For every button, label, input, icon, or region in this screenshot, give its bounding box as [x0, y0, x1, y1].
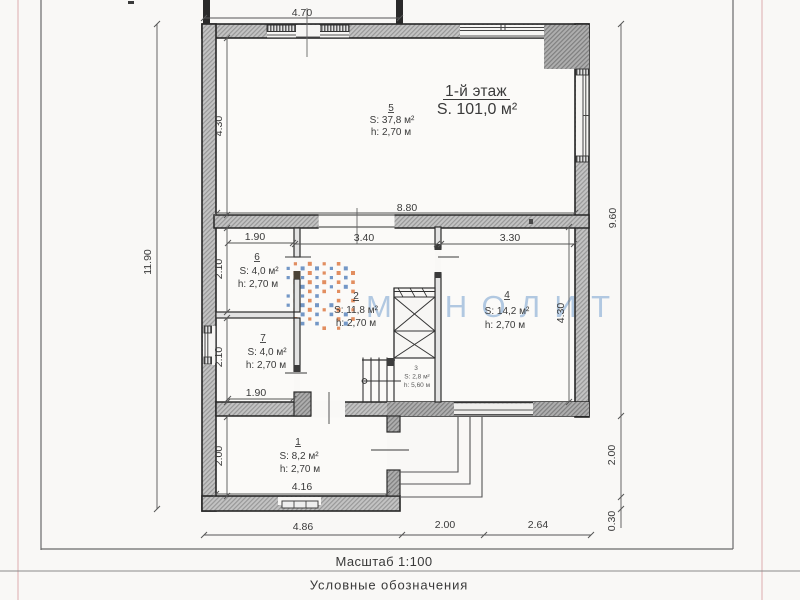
svg-text:h: 2,70 м: h: 2,70 м [336, 318, 376, 329]
svg-text:S: 2,8 м²: S: 2,8 м² [404, 374, 430, 381]
svg-text:S: 11,8 м²: S: 11,8 м² [334, 305, 379, 316]
svg-text:S. 101,0 м²: S. 101,0 м² [437, 101, 518, 118]
svg-text:2.00: 2.00 [606, 445, 618, 466]
svg-text:h: 2,70 м: h: 2,70 м [485, 320, 525, 331]
svg-text:2.10: 2.10 [213, 347, 225, 368]
svg-text:4.16: 4.16 [292, 481, 313, 493]
svg-text:4.70: 4.70 [292, 7, 313, 19]
svg-text:S: 14,2 м²: S: 14,2 м² [485, 306, 530, 317]
svg-text:Масштаб 1:100: Масштаб 1:100 [336, 554, 433, 569]
svg-text:4.30: 4.30 [555, 303, 567, 324]
svg-text:2.64: 2.64 [528, 519, 549, 531]
svg-text:4.30: 4.30 [213, 116, 225, 137]
svg-text:h: 2,70 м: h: 2,70 м [246, 360, 286, 371]
svg-text:S: 4,0 м²: S: 4,0 м² [247, 347, 287, 358]
svg-text:1.90: 1.90 [245, 231, 266, 243]
svg-text:3: 3 [414, 365, 418, 372]
svg-text:2.00: 2.00 [435, 519, 456, 531]
svg-text:8.80: 8.80 [397, 202, 418, 214]
svg-text:9.60: 9.60 [607, 208, 619, 229]
svg-text:1.90: 1.90 [246, 387, 267, 399]
svg-text:h: 2,70 м: h: 2,70 м [371, 127, 411, 138]
svg-text:S: 4,0 м²: S: 4,0 м² [239, 266, 279, 277]
svg-text:3.30: 3.30 [500, 232, 521, 244]
svg-text:1-й этаж: 1-й этаж [445, 83, 507, 100]
svg-text:0.30: 0.30 [606, 511, 618, 532]
svg-text:2.00: 2.00 [213, 446, 225, 467]
svg-text:2.10: 2.10 [213, 259, 225, 280]
svg-text:S: 8,2 м²: S: 8,2 м² [279, 451, 319, 462]
svg-text:4.86: 4.86 [293, 521, 314, 533]
svg-text:h: 2,70 м: h: 2,70 м [280, 464, 320, 475]
svg-text:11.90: 11.90 [142, 249, 154, 275]
svg-text:h: 5,60 м: h: 5,60 м [404, 382, 431, 389]
svg-text:Условные обозначения: Условные обозначения [310, 578, 468, 593]
svg-text:S: 37,8 м²: S: 37,8 м² [370, 115, 415, 126]
svg-text:3.40: 3.40 [354, 232, 375, 244]
svg-text:h: 2,70 м: h: 2,70 м [238, 279, 278, 290]
